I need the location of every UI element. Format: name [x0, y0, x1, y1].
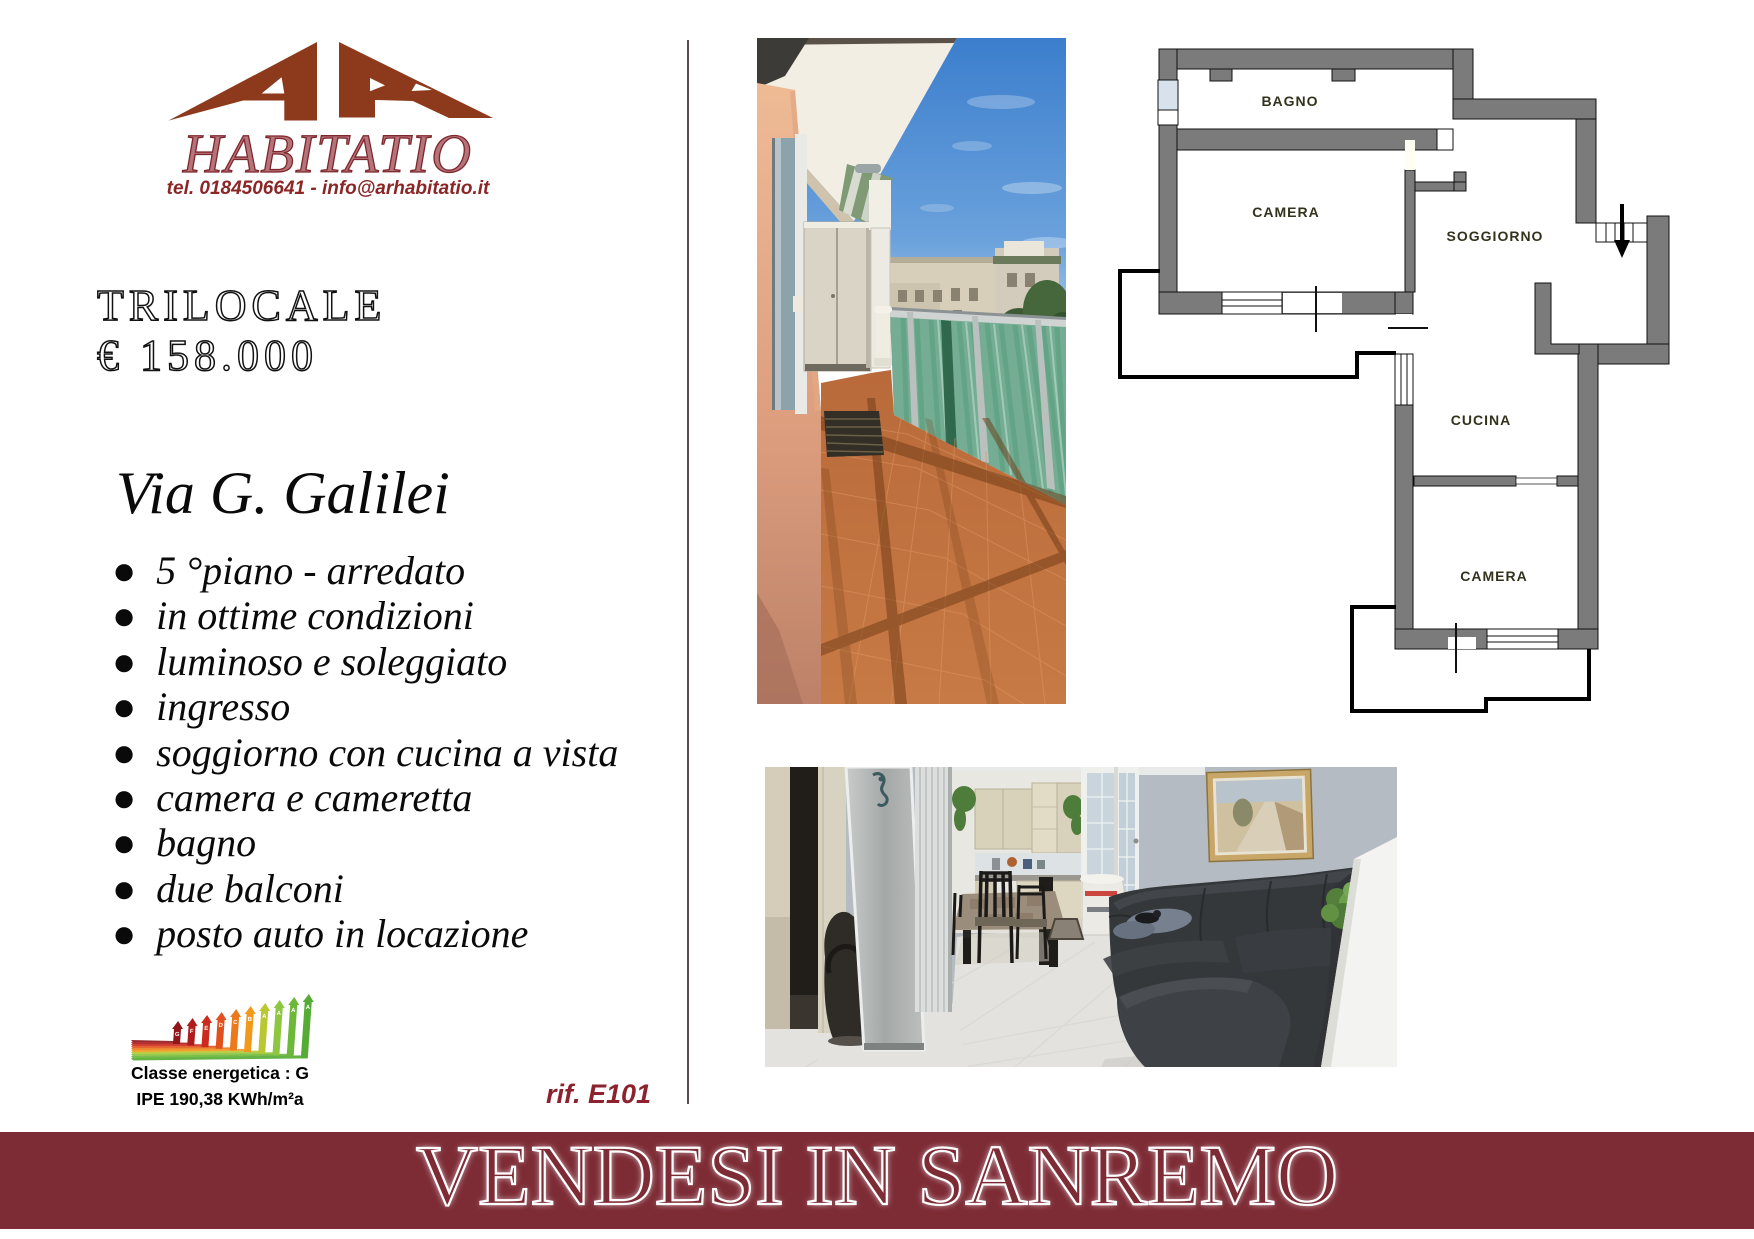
svg-text:CUCINA: CUCINA: [1451, 412, 1511, 428]
svg-text:CAMERA: CAMERA: [1460, 568, 1527, 584]
svg-text:E: E: [204, 1026, 208, 1032]
svg-text:SOGGIORNO: SOGGIORNO: [1447, 228, 1544, 244]
svg-text:CAMERA: CAMERA: [1252, 204, 1319, 220]
svg-text:G: G: [175, 1032, 180, 1038]
svg-text:BAGNO: BAGNO: [1261, 93, 1318, 109]
